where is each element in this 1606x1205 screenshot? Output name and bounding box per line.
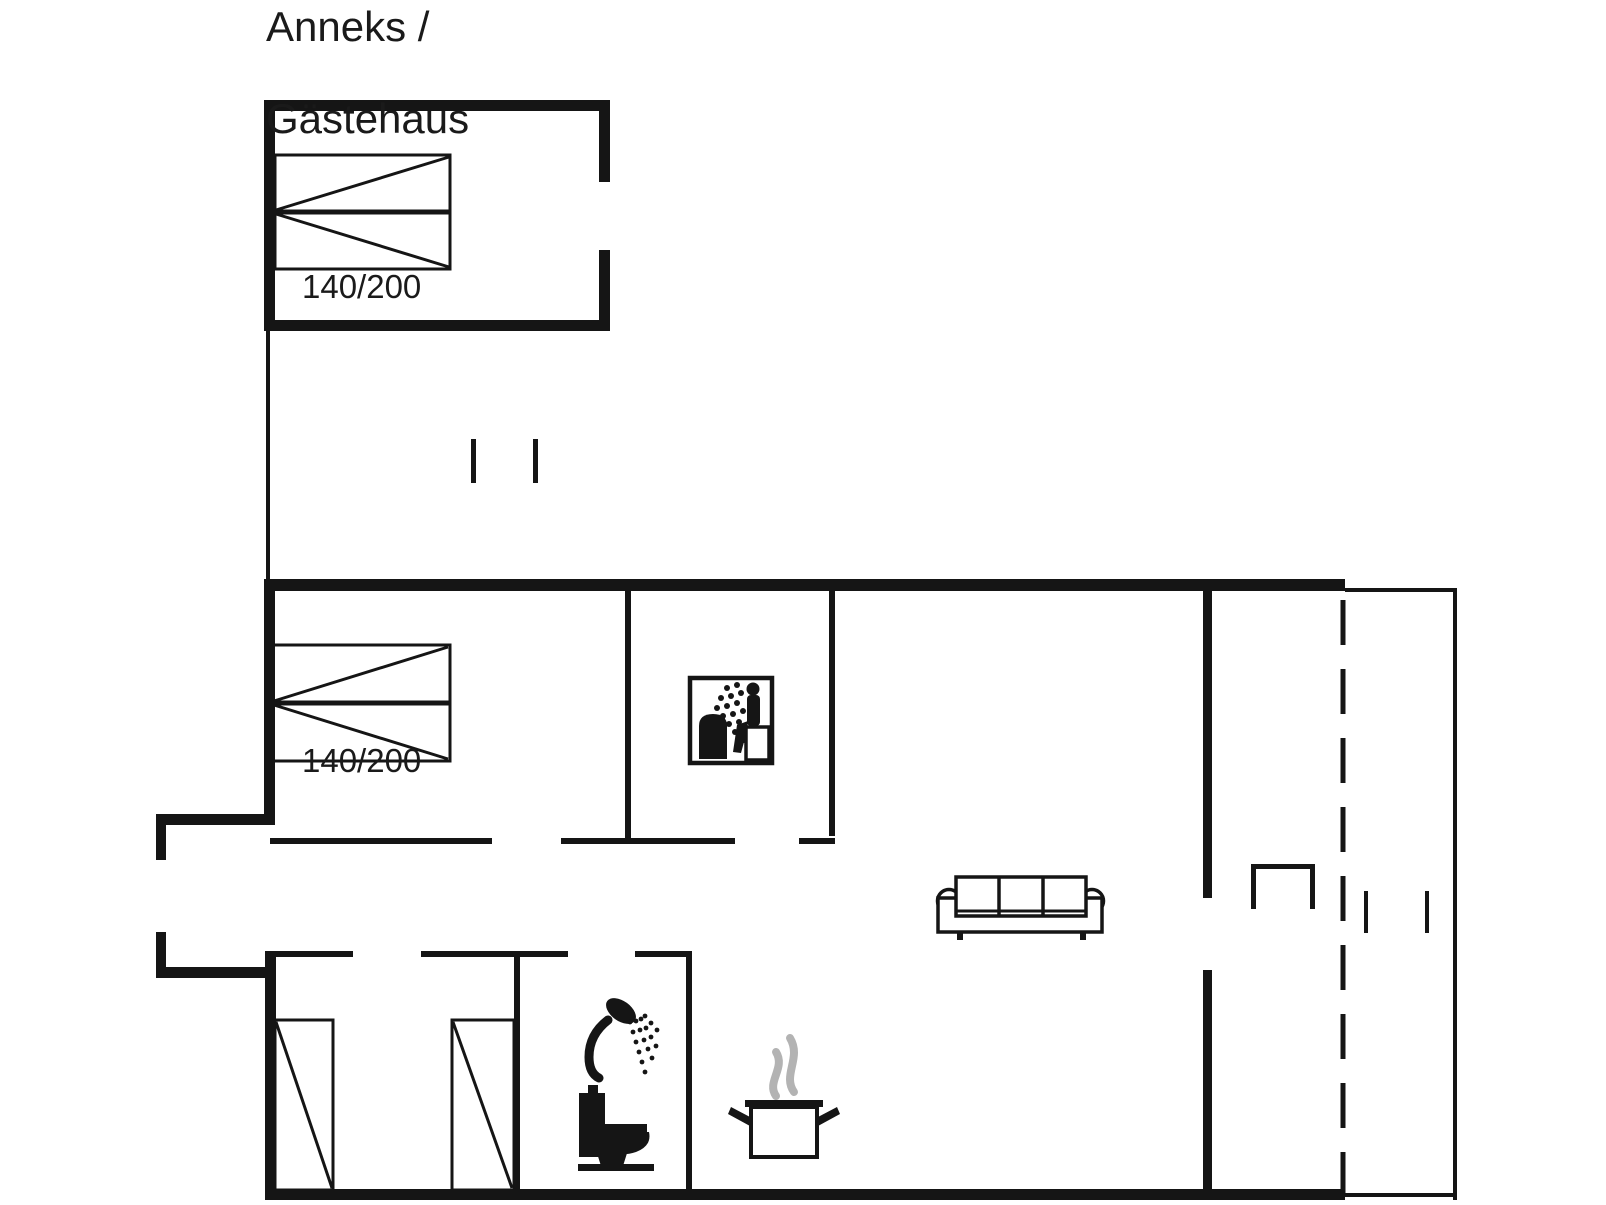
bedroom-bed-size-label: 140/200 <box>302 744 421 778</box>
sofa-icon <box>938 877 1104 940</box>
annex-double-bed-icon <box>275 155 450 269</box>
floor-plan-drawing <box>0 0 1606 1205</box>
terrace-outline <box>1345 588 1457 1200</box>
toilet-icon <box>578 1085 654 1171</box>
cooking-pot-icon <box>728 1038 840 1157</box>
terrace-bench <box>1251 864 1315 909</box>
shower-icon <box>589 993 659 1078</box>
fence-line <box>266 331 538 579</box>
sauna-icon <box>690 678 772 763</box>
steam-icon <box>773 1038 794 1096</box>
annex-title-line2: Gästehaus <box>266 95 469 142</box>
annex-title-line1: Anneks / <box>266 3 429 50</box>
annex-bed-size-label: 140/200 <box>302 270 421 304</box>
floor-plan: Anneks / Gästehaus 140/200 140/200 <box>0 0 1606 1205</box>
annex-title: Anneks / Gästehaus <box>266 4 469 142</box>
single-bed-icon-left <box>275 1020 333 1190</box>
single-bed-icon-right <box>452 1020 514 1190</box>
